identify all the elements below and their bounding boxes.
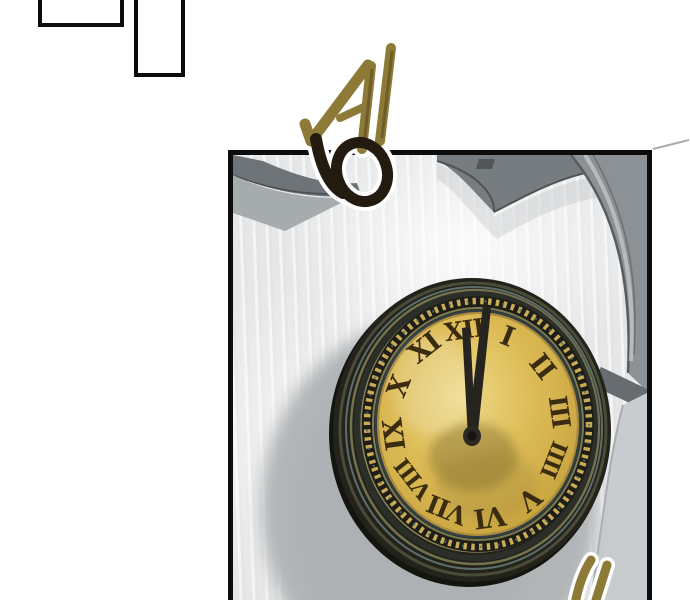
- clock-hub-pin: [468, 431, 477, 441]
- drape-top-left: [233, 155, 361, 231]
- empty-panel-fragment-2: [134, 0, 185, 77]
- clock-numeral-IX: IX: [377, 416, 412, 453]
- panel-artwork: XIIIIIIIIIIIIVVIVIIVIIIIXXXI: [233, 155, 647, 600]
- wall-clock-icon: XIIIIIIIIIIIIVVIVIIVIIIIXXXI: [329, 278, 611, 587]
- comic-page: XIIIIIIIIIIIIVVIVIIVIIIIXXXI: [0, 0, 690, 600]
- empty-panel-fragment-1: [38, 0, 124, 27]
- clock-numeral-III: III: [543, 394, 576, 430]
- ribbon-edge-outside-panel: [653, 140, 689, 149]
- clock-numeral-VI: VI: [472, 499, 509, 534]
- main-panel: XIIIIIIIIIIIIVVIVIIVIIIIXXXI: [228, 150, 652, 600]
